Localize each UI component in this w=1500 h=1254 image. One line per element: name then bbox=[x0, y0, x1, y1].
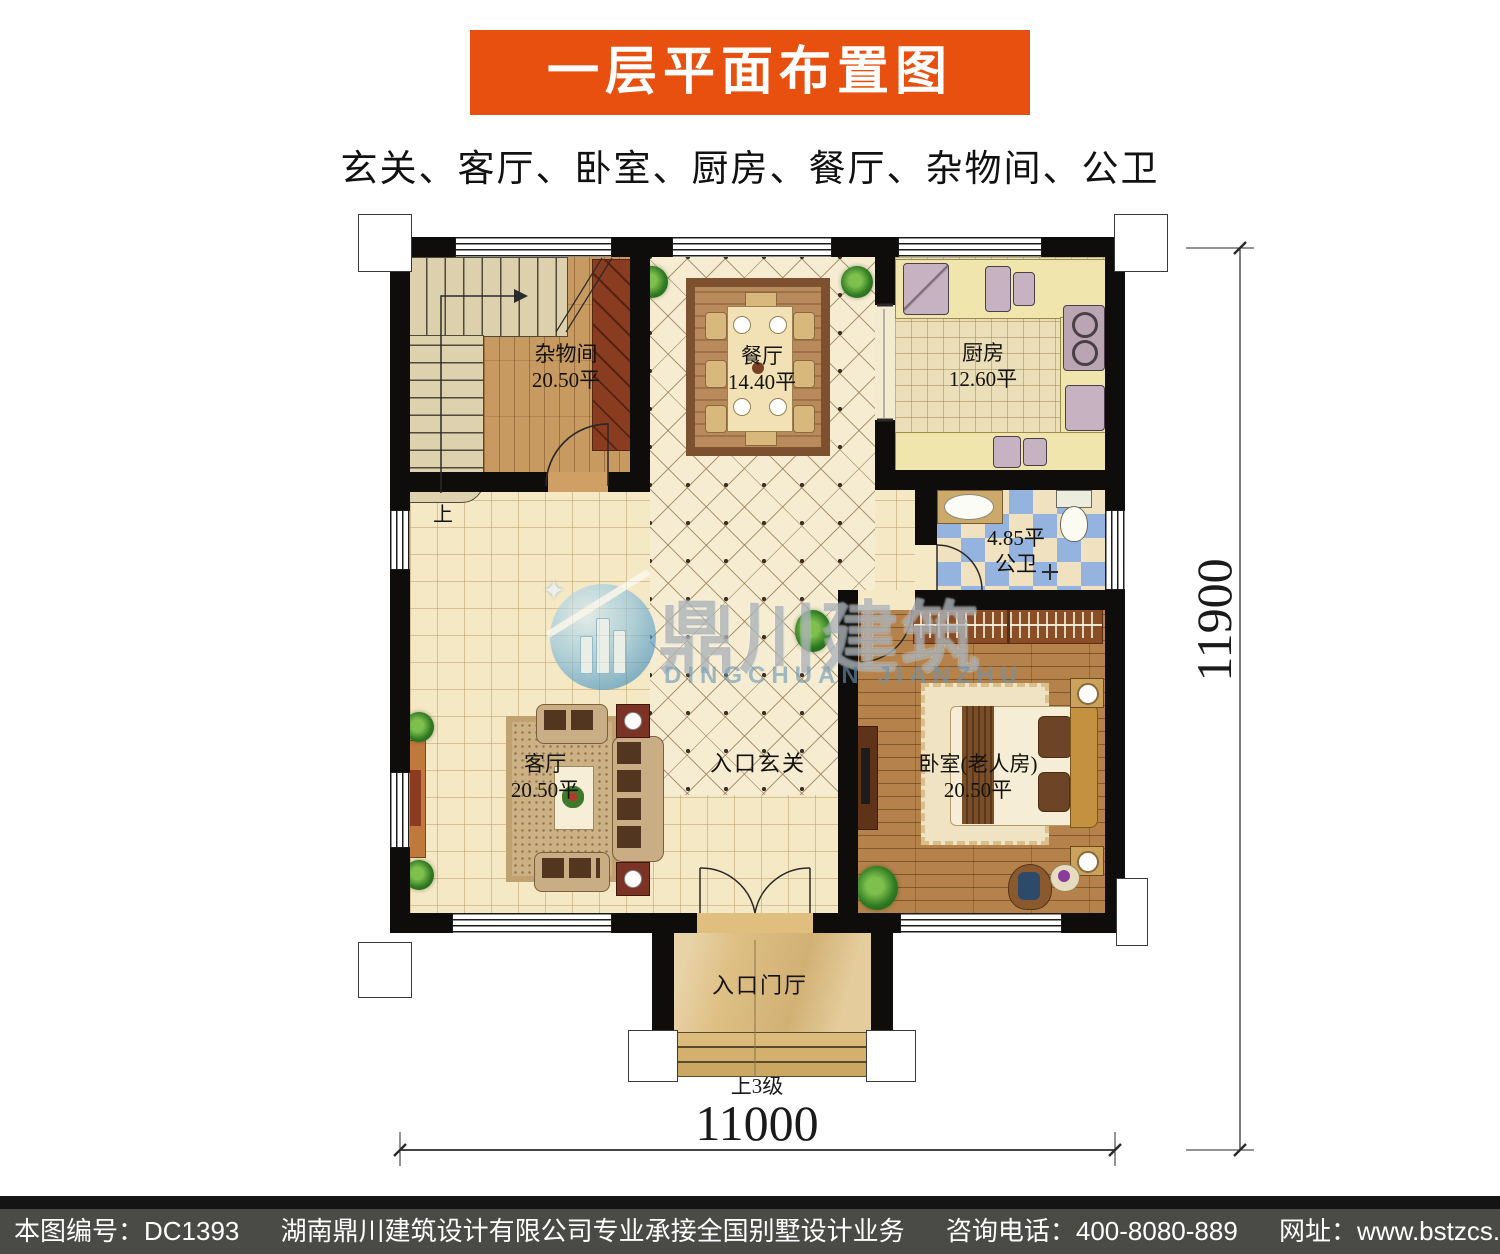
room-area: 14.40平 bbox=[692, 369, 832, 395]
label-porch: 入口门厅 bbox=[670, 972, 850, 1000]
stair-up-label: 上 bbox=[428, 503, 458, 528]
label-hall: 入口玄关 bbox=[668, 750, 848, 778]
watermark-en: DINGCHUAN JIANZHU bbox=[664, 662, 1023, 690]
room-area: 20.50平 bbox=[475, 777, 615, 803]
label-dining: 餐厅 14.40平 bbox=[692, 343, 832, 396]
room-area: 4.85平 bbox=[946, 525, 1086, 551]
label-bedroom: 卧室(老人房) 20.50平 bbox=[878, 751, 1078, 804]
room-area: 12.60平 bbox=[913, 366, 1053, 392]
label-storage: 杂物间 20.50平 bbox=[496, 341, 636, 394]
label-living: 客厅 20.50平 bbox=[475, 751, 615, 804]
dingchuan-logo-icon: ✦ bbox=[550, 584, 656, 690]
logo-star-icon: ✦ bbox=[542, 574, 565, 607]
room-name: 杂物间 bbox=[496, 341, 636, 367]
logo-building-bar bbox=[580, 636, 593, 674]
logo-building-bar bbox=[596, 618, 610, 674]
logo-building-bar bbox=[613, 630, 626, 674]
watermark: ✦ 鼎川建筑 DINGCHUAN JIANZHU bbox=[542, 582, 972, 698]
room-area: 20.50平 bbox=[878, 777, 1078, 803]
label-kitchen: 厨房 12.60平 bbox=[913, 340, 1053, 393]
room-name: 卧室(老人房) bbox=[878, 751, 1078, 777]
room-name: 客厅 bbox=[475, 751, 615, 777]
room-name: 餐厅 bbox=[692, 343, 832, 369]
stair-arrowhead bbox=[514, 289, 528, 303]
floor-plan-page: 一层平面布置图 玄关、客厅、卧室、厨房、餐厅、杂物间、公卫 bbox=[0, 0, 1500, 1254]
room-area: 20.50平 bbox=[496, 367, 636, 393]
room-name: 公卫 bbox=[946, 551, 1086, 577]
label-bath: 4.85平 公卫 bbox=[946, 525, 1086, 578]
room-name: 厨房 bbox=[913, 340, 1053, 366]
